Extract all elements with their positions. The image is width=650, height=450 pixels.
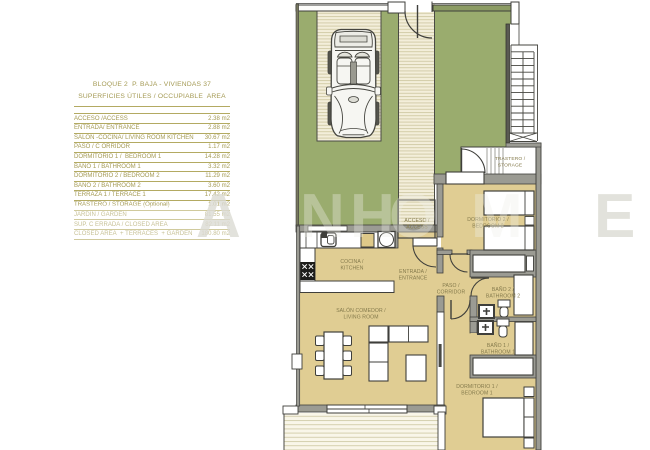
svg-text:KITCHEN: KITCHEN — [340, 266, 363, 272]
svg-text:SALÓN COMEDOR /: SALÓN COMEDOR / — [336, 307, 386, 314]
svg-text:DORMITORIO 1 /: DORMITORIO 1 / — [456, 384, 498, 390]
svg-text:BAÑO 1 /: BAÑO 1 / — [487, 342, 510, 349]
svg-text:ENTRADA /: ENTRADA / — [399, 269, 427, 275]
svg-text:CORRIDOR: CORRIDOR — [437, 290, 466, 296]
svg-text:ENTRANCE: ENTRANCE — [399, 276, 428, 282]
svg-text:BATHROOM 2: BATHROOM 2 — [486, 294, 520, 300]
svg-text:TRASTERO /: TRASTERO / — [495, 156, 526, 162]
svg-text:BATHROOM 1: BATHROOM 1 — [481, 350, 515, 356]
svg-text:BEDROOM 1: BEDROOM 1 — [461, 391, 493, 397]
svg-text:PASO /: PASO / — [442, 283, 460, 289]
svg-text:BAÑO 2 /: BAÑO 2 / — [492, 286, 515, 293]
svg-text:STORAGE: STORAGE — [498, 162, 523, 168]
svg-text:LIVING ROOM: LIVING ROOM — [343, 315, 378, 321]
svg-text:COCINA /: COCINA / — [340, 259, 364, 265]
